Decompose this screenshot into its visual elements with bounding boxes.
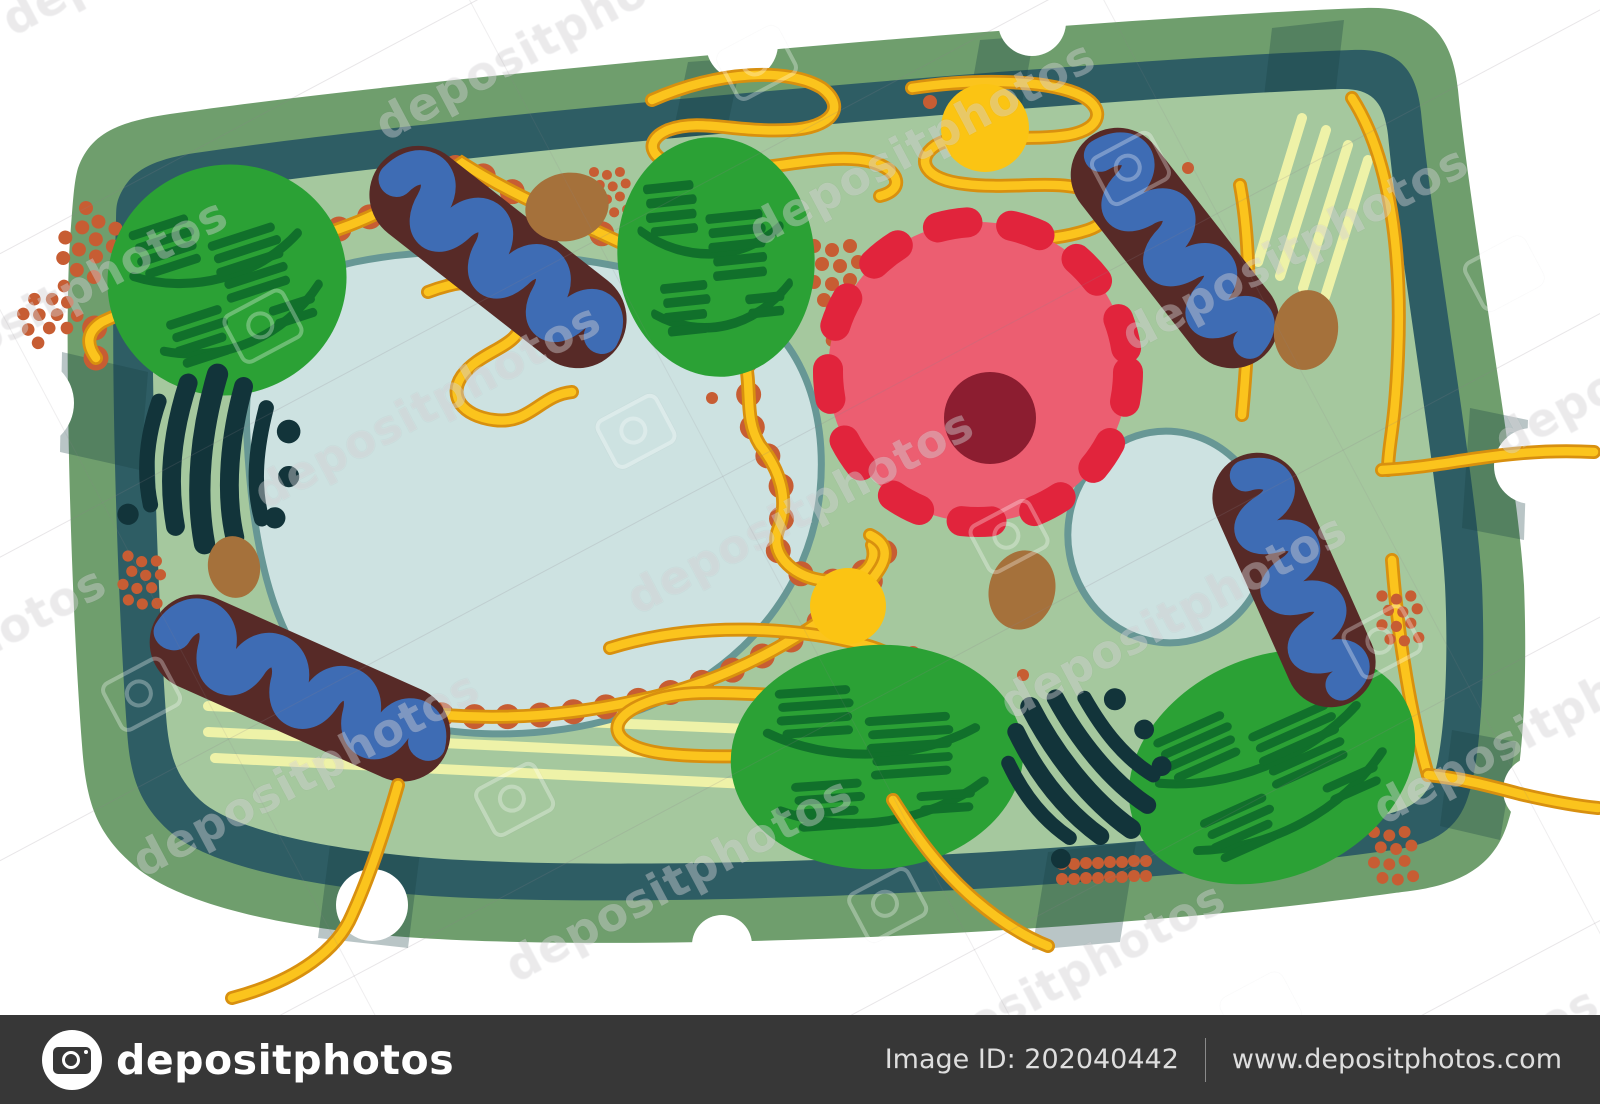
footer-logo: depositphotos [42, 1030, 454, 1090]
footer-url: www.depositphotos.com [1232, 1044, 1562, 1075]
stock-image-canvas: depositphotosdepositphotosdepositphotosd… [0, 0, 1600, 1104]
camera-logo-icon [42, 1030, 102, 1090]
nucleolus [944, 372, 1036, 464]
image-id-text: Image ID: 202040442 [885, 1044, 1179, 1075]
footer-bar: depositphotos Image ID: 202040442 www.de… [0, 1015, 1600, 1104]
nucleus [828, 222, 1128, 522]
footer-meta: Image ID: 202040442 www.depositphotos.co… [885, 1038, 1562, 1082]
footer-divider [1205, 1038, 1206, 1082]
plant-cell-diagram [0, 0, 1600, 1015]
footer-brand-text: depositphotos [116, 1036, 454, 1084]
